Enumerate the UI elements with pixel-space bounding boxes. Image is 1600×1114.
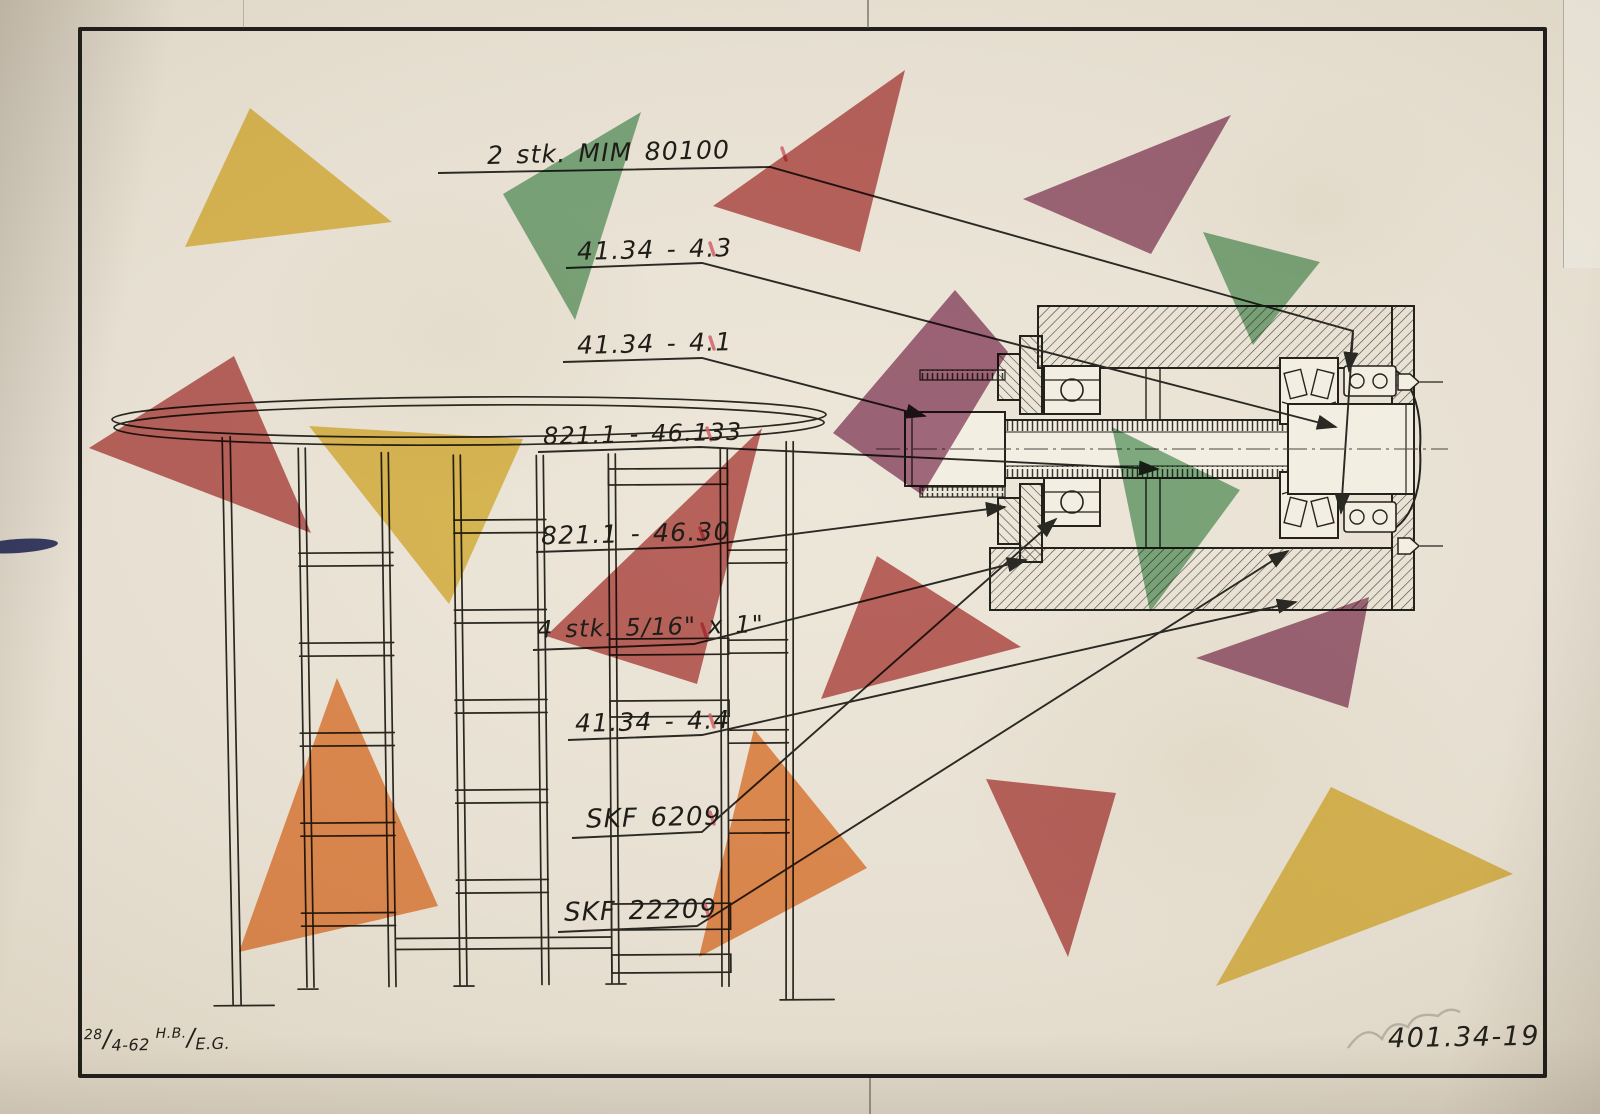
tape-seam-topleft [243, 0, 244, 28]
tape-seam-top [867, 0, 869, 28]
border-frame [78, 27, 1547, 1078]
tape-patch-right [1563, 0, 1600, 268]
tape-seam-bottom [869, 1078, 871, 1114]
scanned-technical-drawing: { "document_type": "vintage engineering … [0, 0, 1600, 1114]
